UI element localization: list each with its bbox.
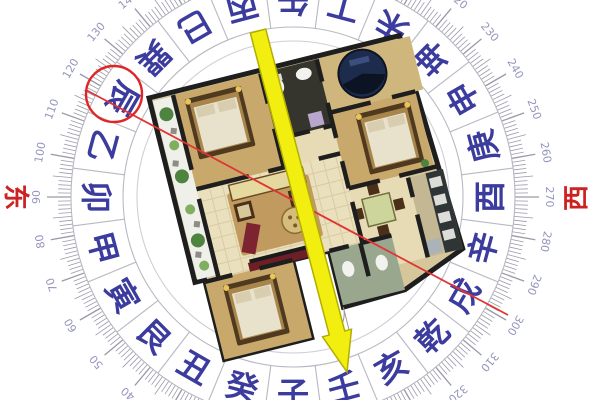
degree-label-290: 290 bbox=[524, 273, 543, 297]
degree-tick bbox=[64, 144, 77, 147]
degree-tick bbox=[123, 27, 136, 40]
degree-tick bbox=[500, 113, 512, 118]
degree-tick bbox=[514, 220, 527, 221]
degree-tick bbox=[458, 346, 468, 355]
degree-tick bbox=[155, 0, 166, 15]
degree-tick bbox=[450, 354, 463, 367]
degree-tick bbox=[513, 228, 526, 230]
degree-tick bbox=[505, 128, 517, 132]
degree-tick bbox=[505, 262, 517, 266]
degree-tick bbox=[510, 243, 523, 246]
degree-tick bbox=[68, 128, 80, 132]
degree-tick bbox=[108, 334, 118, 342]
degree-tick bbox=[502, 113, 525, 121]
degree-tick bbox=[124, 34, 133, 43]
fengshui-compass-screenshot: 0102030405060708090100110120130140150160… bbox=[0, 0, 600, 400]
degree-tick bbox=[509, 247, 522, 250]
degree-label-240: 240 bbox=[504, 56, 526, 81]
degree-tick bbox=[67, 258, 79, 262]
degree-tick bbox=[121, 348, 131, 357]
degree-tick bbox=[78, 287, 90, 292]
degree-tick bbox=[512, 232, 525, 234]
degree-tick bbox=[172, 0, 179, 7]
degree-tick bbox=[455, 348, 465, 357]
degree-tick bbox=[508, 251, 521, 254]
degree-tick bbox=[508, 140, 521, 143]
degree-tick bbox=[442, 22, 451, 32]
degree-tick bbox=[513, 224, 526, 226]
degree-label-300: 300 bbox=[504, 313, 526, 338]
degree-tick bbox=[514, 172, 527, 173]
degree-tick bbox=[499, 280, 511, 285]
degree-tick bbox=[121, 37, 131, 46]
degree-tick bbox=[509, 144, 522, 147]
degree-label-70: 70 bbox=[43, 276, 60, 294]
degree-label-40: 40 bbox=[118, 384, 137, 400]
degree-tick bbox=[503, 269, 515, 273]
degree-tick bbox=[468, 334, 478, 342]
pebble bbox=[170, 128, 177, 135]
mountain-label-12: 午 bbox=[277, 0, 309, 19]
degree-tick bbox=[53, 216, 72, 218]
degree-label-250: 250 bbox=[524, 97, 543, 121]
degree-tick bbox=[502, 273, 525, 281]
degree-label-260: 260 bbox=[538, 141, 554, 164]
degree-tick bbox=[510, 148, 523, 151]
degree-tick bbox=[71, 269, 83, 273]
degree-tick bbox=[136, 22, 145, 32]
degree-tick bbox=[75, 109, 87, 114]
degree-tick bbox=[75, 280, 87, 285]
degree-tick bbox=[61, 232, 74, 234]
degree-tick bbox=[53, 176, 72, 178]
degree-tick bbox=[504, 124, 516, 128]
degree-label-320: 320 bbox=[446, 382, 470, 400]
degree-tick bbox=[59, 220, 72, 221]
degree-tick bbox=[62, 239, 75, 241]
degree-tick bbox=[59, 172, 72, 173]
pebble bbox=[172, 160, 179, 167]
degree-tick bbox=[514, 212, 527, 213]
degree-label-90: 90 bbox=[30, 190, 43, 204]
degree-tick bbox=[499, 109, 511, 114]
degree-tick bbox=[458, 40, 468, 49]
degree-label-50: 50 bbox=[87, 352, 106, 371]
degree-tick bbox=[96, 324, 112, 335]
degree-label-280: 280 bbox=[538, 230, 554, 253]
degree-tick bbox=[71, 120, 83, 124]
degree-tick bbox=[133, 25, 142, 35]
degree-tick bbox=[407, 0, 414, 7]
degree-tick bbox=[62, 113, 85, 121]
degree-tick bbox=[494, 291, 511, 299]
degree-tick bbox=[507, 254, 525, 259]
degree-tick bbox=[506, 132, 518, 136]
degree-tick bbox=[442, 362, 451, 372]
degree-tick bbox=[513, 164, 526, 166]
degree-label-310: 310 bbox=[478, 350, 501, 374]
degree-tick bbox=[513, 168, 526, 170]
degree-tick bbox=[447, 28, 456, 37]
degree-tick bbox=[511, 239, 524, 241]
degree-tick bbox=[60, 228, 73, 230]
degree-tick bbox=[504, 266, 516, 270]
degree-tick bbox=[61, 160, 74, 162]
degree-tick bbox=[65, 251, 78, 254]
degree-tick bbox=[468, 52, 478, 60]
degree-tick bbox=[75, 291, 92, 299]
degree-tick bbox=[494, 95, 511, 103]
degree-tick bbox=[60, 164, 73, 166]
degree-tick bbox=[444, 25, 453, 35]
east-label: 东 bbox=[0, 184, 31, 210]
degree-tick bbox=[123, 354, 136, 367]
degree-tick bbox=[515, 185, 528, 186]
degree-tick bbox=[420, 0, 431, 15]
degree-tick bbox=[136, 362, 145, 372]
degree-tick bbox=[51, 154, 75, 158]
degree-label-120: 120 bbox=[60, 56, 82, 81]
degree-tick bbox=[64, 247, 77, 250]
west-label: 西 bbox=[562, 185, 592, 211]
degree-tick bbox=[497, 284, 509, 289]
degree-tick bbox=[511, 152, 524, 154]
degree-tick bbox=[70, 124, 82, 128]
degree-tick bbox=[514, 176, 533, 178]
degree-label-80: 80 bbox=[33, 234, 48, 250]
degree-tick bbox=[74, 277, 86, 282]
degree-tick bbox=[59, 181, 72, 182]
degree-tick bbox=[60, 168, 73, 170]
degree-tick bbox=[108, 52, 118, 60]
degree-tick bbox=[503, 120, 515, 124]
degree-tick bbox=[444, 359, 453, 369]
degree-tick bbox=[148, 372, 156, 382]
degree-label-230: 230 bbox=[478, 20, 501, 44]
degree-tick bbox=[512, 154, 536, 158]
degree-tick bbox=[63, 243, 76, 246]
degree-tick bbox=[453, 351, 462, 360]
degree-tick bbox=[77, 284, 89, 289]
mountain-label-6: 卯 bbox=[77, 181, 115, 213]
degree-tick bbox=[500, 277, 512, 282]
mountain-label-18: 酉 bbox=[471, 181, 509, 213]
degree-label-110: 110 bbox=[42, 97, 61, 121]
degree-tick bbox=[450, 27, 463, 40]
degree-tick bbox=[118, 346, 128, 355]
degree-tick bbox=[455, 37, 465, 46]
pebble bbox=[194, 221, 201, 228]
degree-tick bbox=[430, 12, 438, 22]
degree-tick bbox=[62, 273, 85, 281]
degree-tick bbox=[133, 359, 142, 369]
degree-tick bbox=[512, 236, 536, 240]
degree-tick bbox=[497, 105, 509, 110]
degree-label-100: 100 bbox=[32, 141, 48, 164]
degree-tick bbox=[496, 101, 508, 106]
degree-tick bbox=[77, 105, 89, 110]
degree-tick bbox=[507, 135, 525, 140]
degree-label-60: 60 bbox=[62, 316, 80, 335]
degree-tick bbox=[515, 209, 528, 210]
degree-tick bbox=[70, 266, 82, 270]
degree-tick bbox=[58, 209, 71, 210]
degree-tick bbox=[67, 132, 79, 136]
degree-tick bbox=[496, 287, 508, 292]
degree-tick bbox=[60, 254, 78, 259]
degree-tick bbox=[420, 379, 431, 395]
degree-tick bbox=[475, 59, 491, 70]
scene-canvas: 0102030405060708090100110120130140150160… bbox=[0, 0, 600, 400]
degree-tick bbox=[62, 152, 75, 154]
degree-tick bbox=[74, 113, 86, 118]
degree-tick bbox=[51, 236, 75, 240]
degree-tick bbox=[65, 140, 78, 143]
degree-tick bbox=[68, 262, 80, 266]
degree-tick bbox=[118, 40, 128, 49]
pebble bbox=[195, 251, 202, 258]
degree-tick bbox=[130, 357, 139, 366]
degree-tick bbox=[430, 372, 438, 382]
degree-tick bbox=[475, 324, 491, 335]
degree-tick bbox=[512, 160, 525, 162]
degree-tick bbox=[514, 216, 533, 218]
degree-tick bbox=[514, 181, 527, 182]
degree-tick bbox=[75, 95, 92, 103]
degree-tick bbox=[60, 135, 78, 140]
degree-tick bbox=[58, 185, 71, 186]
degree-tick bbox=[63, 148, 76, 151]
degree-tick bbox=[148, 12, 156, 22]
degree-tick bbox=[124, 351, 133, 360]
dining-table bbox=[362, 193, 396, 227]
degree-label-130: 130 bbox=[85, 20, 108, 44]
degree-tick bbox=[447, 357, 456, 366]
degree-tick bbox=[59, 212, 72, 213]
mountain-label-0: 子 bbox=[277, 375, 309, 400]
degree-tick bbox=[155, 379, 166, 395]
degree-tick bbox=[130, 28, 139, 37]
degree-tick bbox=[453, 34, 462, 43]
degree-tick bbox=[506, 258, 518, 262]
degree-tick bbox=[60, 224, 73, 226]
degree-label-270: 270 bbox=[543, 187, 556, 208]
